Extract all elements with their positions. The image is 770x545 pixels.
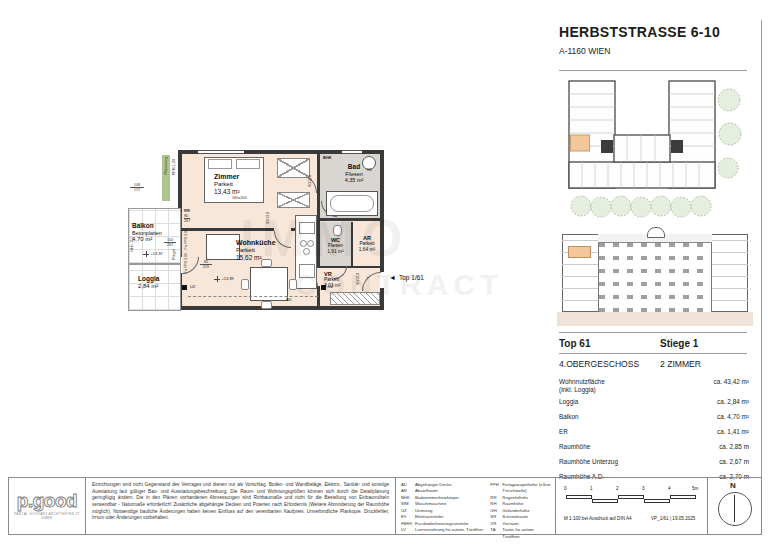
- room-label: Wohnküche: [236, 239, 276, 247]
- bed-size-label: 160x200: [232, 196, 247, 200]
- entrance-label: Top 1/61: [399, 274, 424, 281]
- rr-abbr: RR: [184, 209, 190, 214]
- chair: [261, 301, 272, 309]
- footer: p.good PASCAL GOODARZ ARCHITEKTEN ZT GMB…: [8, 477, 762, 535]
- divider: [559, 70, 747, 71]
- uz-marker: [182, 285, 187, 290]
- legend-abbr: TA: [490, 527, 502, 540]
- document-id: VP_1/61 | 19.05.2025: [651, 516, 695, 521]
- uz-marker: [321, 285, 326, 290]
- wnf-label-line2: (inkl. Loggia): [559, 386, 605, 394]
- unit-floor: 4.OBERGESCHOSS: [559, 359, 639, 369]
- ad-label: AD: [286, 298, 292, 302]
- level-marker: +13,89: [214, 276, 234, 282]
- chair: [241, 279, 249, 290]
- entrance-arrow-icon: ◄: [389, 274, 396, 281]
- legend-cell: ADAbgehängte Decke ARAbstellraum BHKBade…: [396, 478, 556, 534]
- project-title: HERBSTSTRASSE 6-10: [559, 24, 720, 40]
- ad-ceiling-line: [188, 296, 318, 297]
- scale-tick: 3: [642, 486, 645, 491]
- legend-abbr: FPH: [490, 482, 502, 495]
- scale-tick: 0: [564, 486, 567, 491]
- room-area-label: 4,35 m²: [334, 177, 374, 183]
- highlighted-unit: [568, 246, 591, 258]
- toilet: [333, 225, 342, 236]
- legend-abbr: LV: [401, 527, 415, 533]
- rr-label: RR 80 267: [184, 209, 190, 223]
- legend-text: Fertigparapethöhe (±3cm Türschwelle): [502, 482, 553, 495]
- room-area-label: 1,91 m²: [321, 249, 350, 255]
- gh-label: GH= 112: [130, 237, 134, 252]
- wall: [317, 218, 380, 221]
- dim-value: 157: [130, 187, 144, 192]
- pflasterung-strip: Pflasterung: [162, 155, 170, 201]
- scale-tick: 5m: [692, 486, 698, 491]
- scale-tick: 4: [668, 486, 671, 491]
- right-column: HERBSTSTRASSE 6-10 A-1160 WIEN: [557, 20, 762, 477]
- fph-label: FPH 1,30: [172, 159, 176, 175]
- dim-value: 267: [164, 242, 176, 247]
- room-floor-label: Parkett: [236, 247, 276, 254]
- project-address: A-1160 WIEN: [559, 46, 610, 56]
- dimension: 80 259: [200, 260, 212, 270]
- north-needle: [734, 495, 735, 522]
- scale-tick: 1: [590, 486, 593, 491]
- level-icon: [143, 251, 149, 257]
- logo-cell: p.good PASCAL GOODARZ ARCHITEKTEN ZT GMB…: [9, 478, 86, 534]
- room-floor-label: Parkett: [214, 181, 240, 188]
- level-icon: [214, 276, 220, 282]
- disclaimer-text: Einrichtungen sind nicht Gegenstand des …: [92, 482, 389, 522]
- scale-bar-segment: [644, 499, 670, 503]
- kitchen-sink: [299, 222, 315, 234]
- legend-text: Taster für autom. Türöffner: [502, 527, 553, 540]
- wall: [317, 154, 320, 268]
- level-text: +13,89: [222, 276, 234, 281]
- level-text: +13,87: [151, 251, 163, 256]
- zimmer-label: Zimmer Parkett 13,43 m²: [214, 173, 240, 196]
- uz-label: UZ: [190, 285, 195, 289]
- level-marker: +13,87: [143, 251, 163, 257]
- dimension: 108 157: [130, 183, 144, 193]
- door-dim: 90/210: [356, 273, 360, 285]
- metric-label: ER: [559, 428, 568, 436]
- dim-value: 267: [184, 218, 190, 223]
- wnf-label: Wohnnutzfläche (inkl. Loggia): [559, 378, 605, 395]
- unit-type: 2 ZIMMER: [660, 359, 701, 369]
- kitchen-counter: [295, 215, 317, 289]
- divider: [559, 332, 747, 333]
- window: [342, 150, 362, 154]
- architect-logo: p.good: [9, 491, 85, 510]
- room-area-label: 2,84 m²: [138, 283, 180, 290]
- room-area-label: 13,43 m²: [214, 188, 240, 196]
- plan-sheet: Balkon Betonplatten 4,70 m² Loggia 2,84 …: [0, 0, 770, 545]
- chair: [289, 279, 297, 290]
- legend-left: ADAbgehängte Decke ARAbstellraum BHKBade…: [396, 478, 490, 534]
- wall: [317, 266, 382, 268]
- metric-label: Raumhöhe Unterzug: [559, 458, 618, 466]
- wc-label: WC Fliesen 1,91 m²: [321, 237, 350, 255]
- architect-logo-subtext: PASCAL GOODARZ ARCHITEKTEN ZT GMBH: [9, 512, 85, 520]
- sofa: [206, 234, 240, 260]
- north-cell: N: [708, 478, 760, 534]
- bhk-label: BHK: [323, 156, 332, 160]
- dimension: 110 267: [164, 238, 176, 248]
- kitchen-appliance: [299, 264, 315, 278]
- entry-wardrobe: [330, 292, 380, 305]
- site-plan: [557, 78, 757, 220]
- wardrobe: [277, 158, 310, 178]
- scale-bar-segment: [592, 499, 618, 503]
- elevation-drawing: [557, 224, 753, 328]
- ar-label: AR Parkett 1,64 m²: [354, 235, 380, 253]
- hob-burner: [300, 240, 307, 247]
- metric-label: Raumhöhe: [559, 443, 590, 451]
- legend-item: LVLeerverrohrung für autom. Türöffner: [401, 527, 488, 533]
- window: [198, 150, 244, 154]
- elevation-dome: [647, 227, 665, 238]
- metric-value: ca. 2,85 m: [657, 443, 749, 450]
- scale-cell: 0 1 2 3 4 5m M 1:100 bei Ausdruck auf DI…: [556, 478, 708, 534]
- wnf-value: ca. 43,42 m²: [657, 378, 749, 385]
- dim-value: 259: [200, 264, 212, 269]
- unit-stiege: Stiege 1: [660, 338, 698, 349]
- hob-burner: [303, 248, 310, 255]
- metric-label: Loggia: [559, 398, 578, 406]
- hob-burner: [307, 240, 314, 247]
- uz-label: UZ: [328, 285, 333, 289]
- elevation-facade: [598, 242, 712, 312]
- room-label: Balkon: [132, 222, 180, 230]
- metric-label: Balkon: [559, 413, 579, 421]
- bathtub: [326, 191, 378, 216]
- floor-plan: Balkon Betonplatten 4,70 m² Loggia 2,84 …: [128, 135, 468, 340]
- fix-window-label: Fix FPH 0,90: [184, 229, 188, 249]
- door-dim: 80/210: [266, 212, 270, 224]
- scale-bar-segment: [670, 495, 696, 499]
- legend-item: FPHFertigparapethöhe (±3cm Türschwelle): [490, 482, 553, 495]
- wall: [182, 228, 274, 231]
- wnf-label-line1: Wohnnutzfläche: [559, 378, 605, 386]
- bathtub-inner: [330, 195, 374, 212]
- wohnkueche-label: Wohnküche Parkett 15,62 m²: [236, 239, 276, 262]
- riegel-label: Riegel: [172, 249, 176, 260]
- loggia-area: Loggia 2,84 m²: [128, 264, 181, 311]
- room-area-label: 15,62 m²: [236, 254, 276, 262]
- highlighted-unit: [571, 135, 590, 151]
- divider: [559, 353, 747, 354]
- furniture-pillow: [236, 159, 260, 169]
- north-label: N: [730, 481, 736, 490]
- room-label: Loggia: [138, 275, 180, 283]
- stair-core: [601, 140, 613, 153]
- unit-top: Top 61: [559, 338, 590, 349]
- legend-text: Leerverrohrung für autom. Türöffner: [415, 527, 483, 533]
- scale-bar-segment: [618, 495, 644, 499]
- elevation-ground: [557, 312, 753, 326]
- metric-value: ca. 4,70 m²: [657, 413, 749, 420]
- elevation-right-wing: [712, 234, 748, 312]
- furniture-pillow: [208, 159, 232, 169]
- metric-value: ca. 1,41 m²: [657, 428, 749, 435]
- legend-item: TATaster für autom. Türöffner: [490, 527, 553, 540]
- room-label: Bad: [334, 163, 374, 171]
- room-area-label: 1,64 m²: [354, 247, 380, 253]
- stair-core: [671, 140, 683, 153]
- metric-value: ca. 2,67 m: [657, 458, 749, 465]
- legend-right: FPHFertigparapethöhe (±3cm Türschwelle) …: [490, 478, 555, 534]
- door-dim: 80/210: [308, 175, 312, 187]
- pflasterung-label: Pflasterung: [164, 157, 168, 175]
- room-label: Zimmer: [214, 173, 240, 181]
- north-arrow-icon: [718, 492, 752, 526]
- scale-note: M 1:100 bei Ausdruck auf DIN A4: [564, 516, 632, 521]
- disclaimer-cell: Einrichtungen sind nicht Gegenstand des …: [86, 478, 396, 534]
- scale-tick: 2: [616, 486, 619, 491]
- wardrobe: [277, 192, 310, 208]
- fix-window-label: Fix FPH 0,90: [184, 253, 188, 273]
- scale-bar-segment: [566, 495, 592, 499]
- wall: [351, 222, 353, 266]
- bad-label: Bad Fliesen 4,35 m²: [334, 163, 374, 184]
- metric-value: ca. 2,84 m²: [657, 398, 749, 405]
